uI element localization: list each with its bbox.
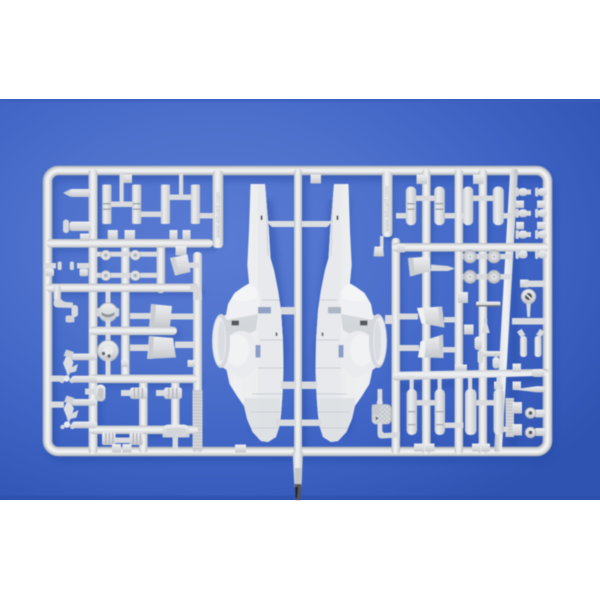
svg-text:www.eduard.com: www.eduard.com: [385, 186, 391, 233]
svg-text:www.eduard.com: www.eduard.com: [216, 192, 222, 239]
